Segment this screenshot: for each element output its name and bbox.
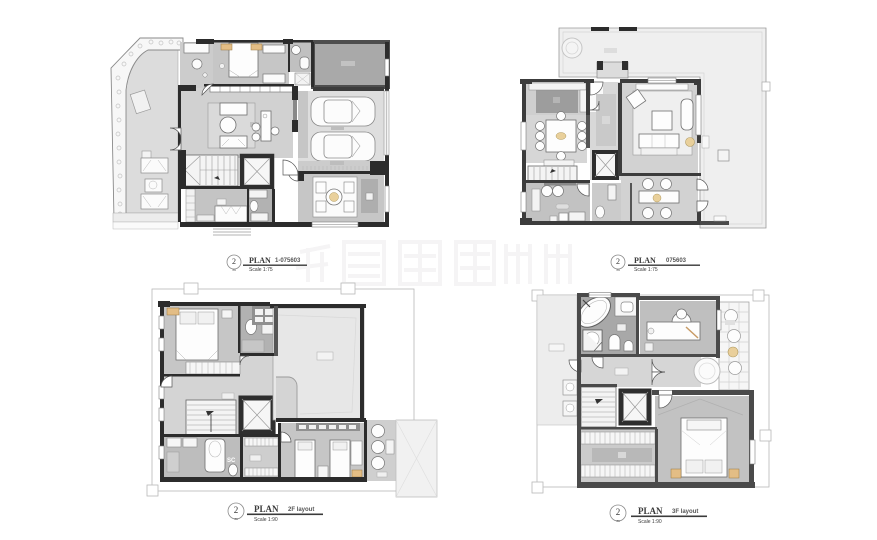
svg-text:075603: 075603: [666, 258, 687, 264]
svg-text:PLAN: PLAN: [254, 504, 279, 514]
svg-text:PLAN: PLAN: [634, 256, 656, 265]
svg-text:3F layout: 3F layout: [672, 509, 698, 515]
svg-text:Scale 1:90: Scale 1:90: [254, 517, 278, 523]
svg-text:2: 2: [616, 257, 620, 266]
svg-text:Scale 1:75: Scale 1:75: [634, 267, 658, 273]
svg-text:Scale 1:90: Scale 1:90: [638, 519, 662, 525]
svg-text:Scale 1:75: Scale 1:75: [249, 267, 273, 273]
svg-text:1-075603: 1-075603: [275, 258, 301, 264]
svg-text:2: 2: [232, 257, 236, 266]
svg-text:PLAN: PLAN: [638, 506, 663, 516]
svg-text:2: 2: [616, 507, 621, 517]
svg-text:SC: SC: [227, 458, 236, 464]
svg-text:2F layout: 2F layout: [288, 507, 314, 513]
svg-text:PLAN: PLAN: [249, 256, 271, 265]
svg-text:2: 2: [234, 505, 239, 515]
